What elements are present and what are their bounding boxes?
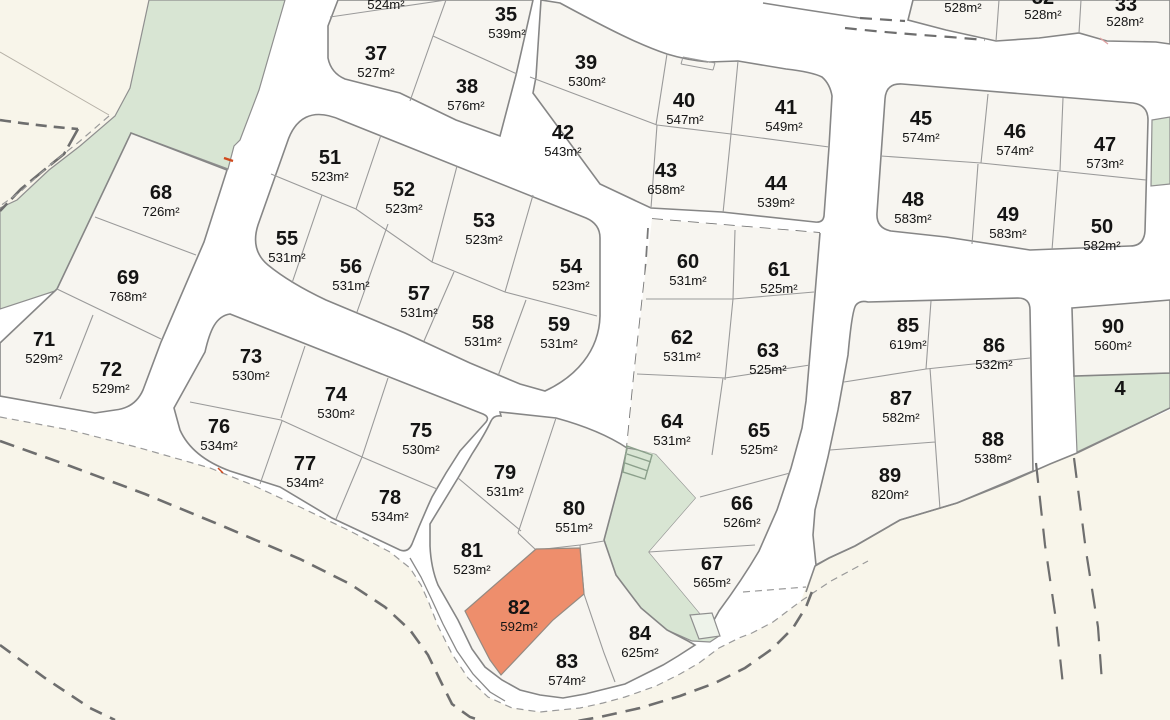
svg-text:768m²: 768m²: [109, 289, 147, 304]
svg-text:82: 82: [508, 597, 530, 619]
svg-text:726m²: 726m²: [142, 204, 180, 219]
svg-text:543m²: 543m²: [544, 144, 582, 159]
svg-text:72: 72: [100, 359, 122, 381]
svg-text:527m²: 527m²: [357, 65, 395, 80]
svg-text:592m²: 592m²: [500, 619, 538, 634]
svg-text:565m²: 565m²: [693, 575, 731, 590]
svg-text:83: 83: [556, 651, 578, 673]
svg-text:820m²: 820m²: [871, 487, 909, 502]
svg-text:583m²: 583m²: [989, 226, 1027, 241]
svg-text:78: 78: [379, 487, 401, 509]
svg-text:530m²: 530m²: [402, 442, 440, 457]
svg-text:531m²: 531m²: [332, 278, 370, 293]
svg-text:531m²: 531m²: [669, 273, 707, 288]
svg-text:523m²: 523m²: [385, 201, 423, 216]
svg-text:528m²: 528m²: [1024, 7, 1062, 22]
svg-text:90: 90: [1102, 316, 1124, 338]
svg-text:65: 65: [748, 420, 770, 442]
svg-text:523m²: 523m²: [552, 278, 590, 293]
svg-text:531m²: 531m²: [268, 250, 306, 265]
svg-text:534m²: 534m²: [286, 475, 324, 490]
svg-text:49: 49: [997, 204, 1019, 226]
svg-text:534m²: 534m²: [371, 509, 409, 524]
svg-text:538m²: 538m²: [974, 451, 1012, 466]
svg-text:61: 61: [768, 259, 790, 281]
svg-text:71: 71: [33, 329, 55, 351]
svg-text:75: 75: [410, 420, 432, 442]
svg-text:583m²: 583m²: [894, 211, 932, 226]
svg-text:79: 79: [494, 462, 516, 484]
svg-text:658m²: 658m²: [647, 182, 685, 197]
svg-text:560m²: 560m²: [1094, 338, 1132, 353]
svg-text:37: 37: [365, 43, 387, 65]
svg-text:66: 66: [731, 493, 753, 515]
svg-text:539m²: 539m²: [757, 195, 795, 210]
svg-text:87: 87: [890, 388, 912, 410]
svg-text:89: 89: [879, 465, 901, 487]
svg-text:523m²: 523m²: [311, 169, 349, 184]
svg-text:525m²: 525m²: [740, 442, 778, 457]
svg-text:547m²: 547m²: [666, 112, 704, 127]
svg-text:574m²: 574m²: [902, 130, 940, 145]
svg-text:77: 77: [294, 453, 316, 475]
svg-text:551m²: 551m²: [555, 520, 593, 535]
svg-text:80: 80: [563, 498, 585, 520]
svg-text:549m²: 549m²: [765, 119, 803, 134]
svg-text:534m²: 534m²: [200, 438, 238, 453]
svg-text:88: 88: [982, 429, 1004, 451]
svg-text:38: 38: [456, 76, 478, 98]
svg-text:58: 58: [472, 312, 494, 334]
svg-text:528m²: 528m²: [1106, 14, 1144, 29]
svg-text:619m²: 619m²: [889, 337, 927, 352]
svg-text:576m²: 576m²: [447, 98, 485, 113]
svg-text:529m²: 529m²: [92, 381, 130, 396]
svg-text:53: 53: [473, 210, 495, 232]
svg-text:43: 43: [655, 160, 677, 182]
svg-text:85: 85: [897, 315, 919, 337]
svg-text:574m²: 574m²: [996, 143, 1034, 158]
svg-text:54: 54: [560, 256, 583, 278]
svg-text:84: 84: [629, 623, 652, 645]
svg-text:4: 4: [1114, 378, 1126, 400]
svg-text:48: 48: [902, 189, 924, 211]
svg-text:47: 47: [1094, 134, 1116, 156]
svg-text:45: 45: [910, 108, 932, 130]
svg-text:574m²: 574m²: [548, 673, 586, 688]
svg-text:531m²: 531m²: [653, 433, 691, 448]
svg-text:67: 67: [701, 553, 723, 575]
svg-text:531m²: 531m²: [540, 336, 578, 351]
svg-text:59: 59: [548, 314, 570, 336]
svg-text:68: 68: [150, 182, 172, 204]
svg-text:64: 64: [661, 411, 684, 433]
svg-text:41: 41: [775, 97, 797, 119]
svg-text:532m²: 532m²: [975, 357, 1013, 372]
svg-text:528m²: 528m²: [944, 0, 982, 15]
svg-text:524m²: 524m²: [367, 0, 405, 12]
svg-text:530m²: 530m²: [232, 368, 270, 383]
svg-text:63: 63: [757, 340, 779, 362]
svg-text:46: 46: [1004, 121, 1026, 143]
svg-text:539m²: 539m²: [488, 26, 526, 41]
svg-text:76: 76: [208, 416, 230, 438]
svg-text:62: 62: [671, 327, 693, 349]
svg-text:44: 44: [765, 173, 788, 195]
svg-text:73: 73: [240, 346, 262, 368]
svg-text:51: 51: [319, 147, 341, 169]
svg-text:81: 81: [461, 540, 483, 562]
svg-text:42: 42: [552, 122, 574, 144]
svg-text:56: 56: [340, 256, 362, 278]
svg-text:74: 74: [325, 384, 348, 406]
svg-text:531m²: 531m²: [400, 305, 438, 320]
svg-text:39: 39: [575, 52, 597, 74]
svg-text:50: 50: [1091, 216, 1113, 238]
svg-text:57: 57: [408, 283, 430, 305]
svg-text:523m²: 523m²: [453, 562, 491, 577]
svg-text:531m²: 531m²: [486, 484, 524, 499]
svg-text:582m²: 582m²: [882, 410, 920, 425]
svg-text:625m²: 625m²: [621, 645, 659, 660]
svg-text:52: 52: [393, 179, 415, 201]
svg-text:69: 69: [117, 267, 139, 289]
svg-text:530m²: 530m²: [317, 406, 355, 421]
svg-text:86: 86: [983, 335, 1005, 357]
svg-text:40: 40: [673, 90, 695, 112]
svg-text:529m²: 529m²: [25, 351, 63, 366]
svg-text:525m²: 525m²: [749, 362, 787, 377]
svg-text:573m²: 573m²: [1086, 156, 1124, 171]
svg-text:530m²: 530m²: [568, 74, 606, 89]
svg-text:582m²: 582m²: [1083, 238, 1121, 253]
svg-text:531m²: 531m²: [663, 349, 701, 364]
svg-text:35: 35: [495, 4, 517, 26]
svg-text:526m²: 526m²: [723, 515, 761, 530]
svg-text:525m²: 525m²: [760, 281, 798, 296]
svg-text:55: 55: [276, 228, 298, 250]
svg-text:531m²: 531m²: [464, 334, 502, 349]
svg-text:60: 60: [677, 251, 699, 273]
svg-text:523m²: 523m²: [465, 232, 503, 247]
